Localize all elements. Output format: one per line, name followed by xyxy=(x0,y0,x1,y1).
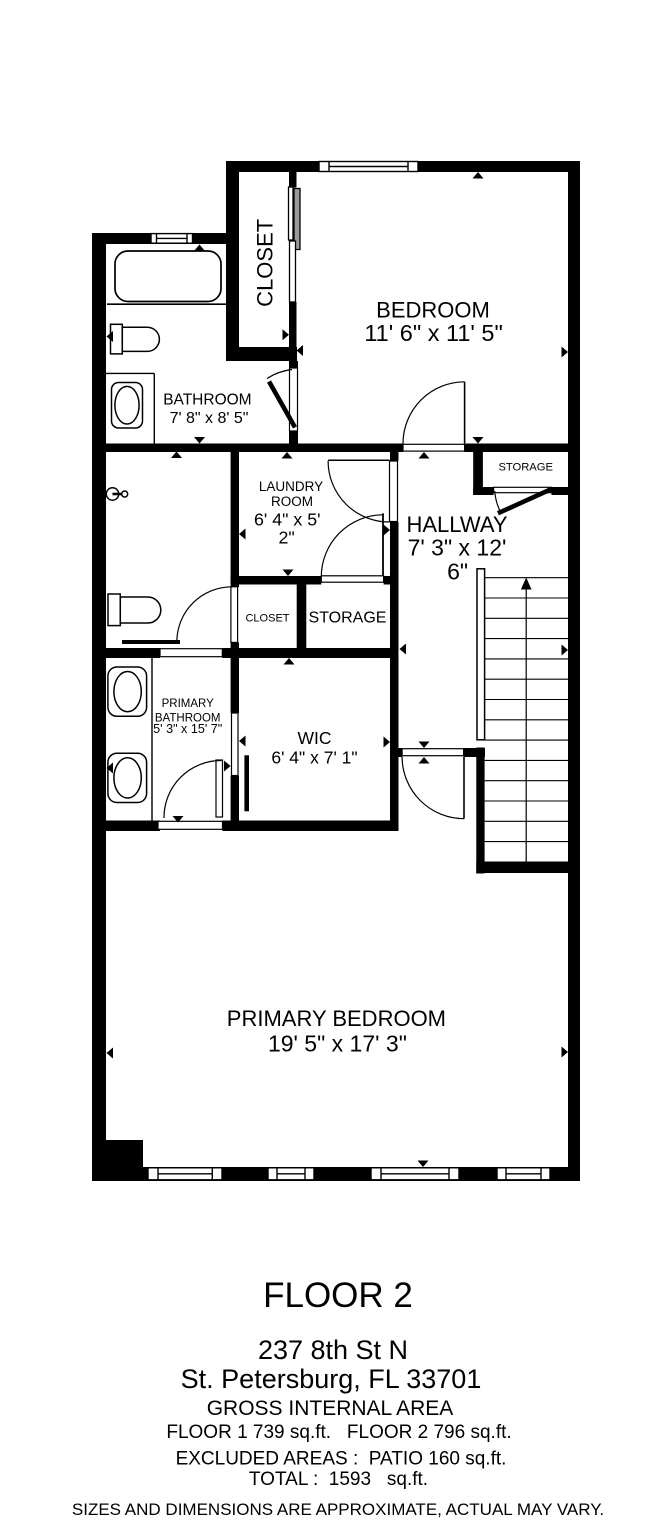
svg-text:2": 2" xyxy=(278,527,294,547)
svg-text:STORAGE: STORAGE xyxy=(309,610,387,627)
svg-text:BEDROOM: BEDROOM xyxy=(376,298,490,323)
svg-text:CLOSET: CLOSET xyxy=(245,612,289,624)
svg-text:SIZES AND DIMENSIONS ARE APPRO: SIZES AND DIMENSIONS ARE APPROXIMATE, AC… xyxy=(72,1500,604,1519)
svg-text:6": 6" xyxy=(447,559,468,585)
svg-text:237 8th St N: 237 8th St N xyxy=(258,1335,408,1365)
svg-text:6' 4" x 7' 1": 6' 4" x 7' 1" xyxy=(271,748,357,768)
svg-text:HALLWAY: HALLWAY xyxy=(406,512,507,537)
svg-text:CLOSET: CLOSET xyxy=(253,219,278,307)
svg-text:St. Petersburg, FL 33701: St. Petersburg, FL 33701 xyxy=(181,1364,482,1394)
svg-text:19' 5" x 17' 3": 19' 5" x 17' 3" xyxy=(268,1031,407,1057)
svg-text:7' 3" x 12': 7' 3" x 12' xyxy=(408,535,507,561)
svg-text:EXCLUDED AREAS : PATIO 160 sq: EXCLUDED AREAS : PATIO 160 sq.ft. xyxy=(176,1449,507,1470)
svg-text:LAUNDRY: LAUNDRY xyxy=(259,479,323,494)
svg-text:GROSS INTERNAL AREA: GROSS INTERNAL AREA xyxy=(207,1397,454,1420)
svg-text:STORAGE: STORAGE xyxy=(498,461,553,473)
svg-text:PRIMARY BEDROOM: PRIMARY BEDROOM xyxy=(227,1006,446,1031)
svg-text:BATHROOM: BATHROOM xyxy=(163,392,251,409)
svg-text:FLOOR 1 739 sq.ft. FLOOR 2 7: FLOOR 1 739 sq.ft. FLOOR 2 796 sq.ft. xyxy=(166,1422,511,1443)
svg-text:7' 8" x 8' 5": 7' 8" x 8' 5" xyxy=(170,410,249,427)
svg-text:11' 6" x 11' 5": 11' 6" x 11' 5" xyxy=(364,320,502,346)
svg-text:TOTAL : 1593 sq.ft.: TOTAL : 1593 sq.ft. xyxy=(249,1469,428,1490)
svg-text:WIC: WIC xyxy=(297,728,331,748)
svg-text:5' 3" x 15' 7": 5' 3" x 15' 7" xyxy=(153,722,222,736)
svg-text:FLOOR 2: FLOOR 2 xyxy=(263,1276,413,1315)
svg-text:PRIMARY: PRIMARY xyxy=(162,698,215,710)
svg-text:ROOM: ROOM xyxy=(271,494,313,509)
